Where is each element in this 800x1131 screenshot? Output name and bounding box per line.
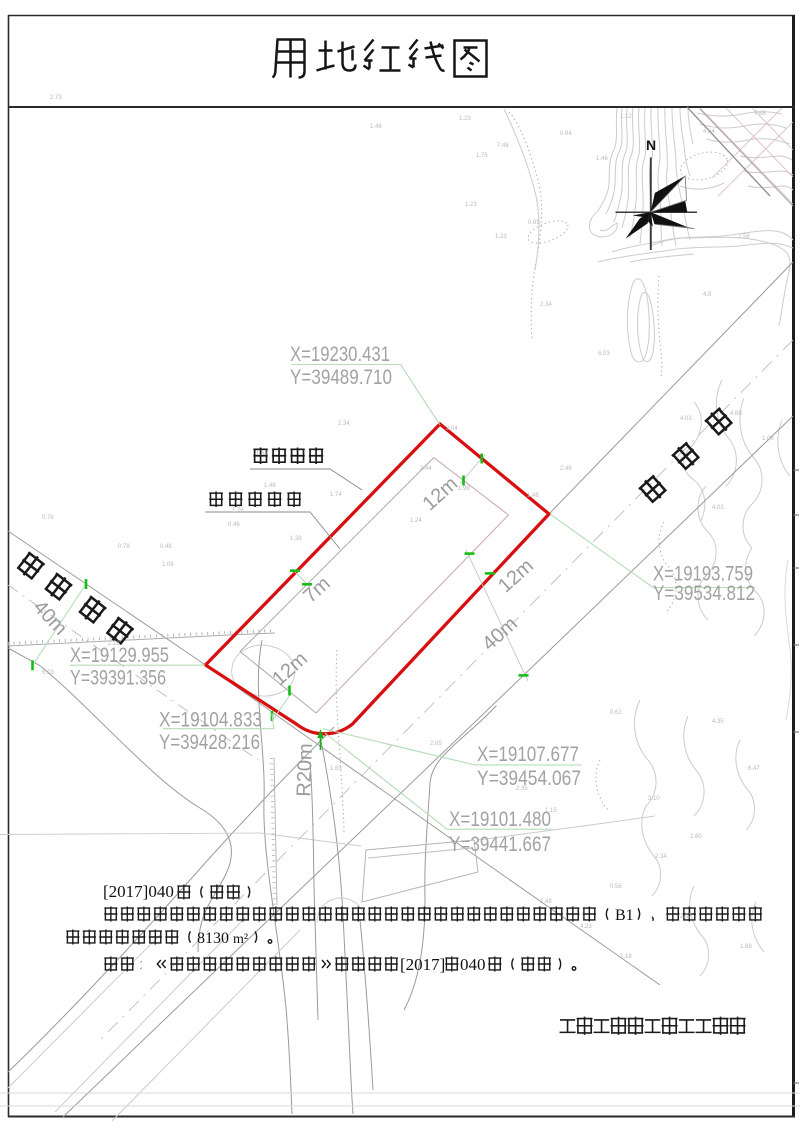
svg-text:X=19104.833: X=19104.833 [159,709,262,732]
svg-text:1.63: 1.63 [330,766,342,772]
svg-text:40m: 40m [478,613,522,655]
svg-text:7.48: 7.48 [497,143,509,149]
svg-text:2.18: 2.18 [108,641,120,647]
svg-text:1.48: 1.48 [527,493,539,499]
svg-text:R20m: R20m [293,743,317,797]
svg-text:2.34: 2.34 [338,421,350,427]
svg-text:1.48: 1.48 [264,483,276,489]
svg-text:4.68: 4.68 [730,411,742,417]
svg-text:4.64: 4.64 [703,129,715,135]
svg-text:1.68: 1.68 [740,944,752,950]
svg-text:X=19101.480: X=19101.480 [449,808,551,831]
svg-text:2.58: 2.58 [738,234,750,240]
svg-text:Y=39441.667: Y=39441.667 [449,833,551,856]
svg-text:Y=39428.216: Y=39428.216 [159,731,260,754]
svg-text:0.56: 0.56 [610,884,622,890]
svg-text:X=19129.955: X=19129.955 [70,644,169,667]
svg-text:1.76: 1.76 [232,508,244,514]
svg-text:Y=39454.067: Y=39454.067 [477,767,581,790]
svg-text:1.75: 1.75 [476,153,488,159]
svg-text:0.48: 0.48 [160,544,172,550]
svg-text:4.03: 4.03 [712,505,724,511]
svg-text:8130: 8130 [197,930,229,947]
svg-text:2.44: 2.44 [420,466,432,472]
svg-text:Y=39534.812: Y=39534.812 [653,582,755,605]
svg-text:2.34: 2.34 [655,854,667,860]
svg-text:1.24: 1.24 [410,518,422,524]
svg-text:4.8: 4.8 [703,292,712,298]
svg-text:B1: B1 [615,907,634,924]
svg-text:0.76: 0.76 [42,515,54,521]
svg-text:0.78: 0.78 [118,544,130,550]
svg-text:2.34: 2.34 [540,302,552,308]
svg-text:2.04: 2.04 [446,426,458,432]
svg-text:2.37: 2.37 [680,914,692,920]
svg-text:1.15: 1.15 [545,808,557,814]
svg-text:2.73: 2.73 [50,95,62,101]
svg-text:4.03: 4.03 [680,416,692,422]
svg-text:4.23: 4.23 [580,924,592,930]
svg-text:2.48: 2.48 [540,899,552,905]
svg-text:7m: 7m [299,573,334,608]
svg-text:1.99: 1.99 [458,486,470,492]
svg-text:1.23: 1.23 [495,234,507,240]
svg-text:2.05: 2.05 [430,741,442,747]
svg-text:7.68: 7.68 [754,111,766,117]
svg-text:3.10: 3.10 [648,796,660,802]
svg-text:m²: m² [233,932,248,947]
svg-text:Y=39391.356: Y=39391.356 [70,667,166,690]
svg-text:X=19230.431: X=19230.431 [290,343,390,366]
svg-text:1.23: 1.23 [465,202,477,208]
svg-text:0.65: 0.65 [528,220,540,226]
svg-text:0.84: 0.84 [560,131,572,137]
svg-text:N: N [646,137,656,153]
svg-text:2.60: 2.60 [690,834,702,840]
svg-text:4.35: 4.35 [712,719,724,725]
svg-text:1.46: 1.46 [596,156,608,162]
svg-text:6.47: 6.47 [748,766,760,772]
svg-text:12m: 12m [268,648,312,690]
svg-text:6.03: 6.03 [598,351,610,357]
svg-text:12m: 12m [494,555,538,597]
svg-text:1.12: 1.12 [620,114,632,120]
svg-text:[2017]040: [2017]040 [103,882,174,901]
svg-text:2.48: 2.48 [560,466,572,472]
svg-text:1.23: 1.23 [459,116,471,122]
svg-text:1.74: 1.74 [330,492,342,498]
svg-text:1.08: 1.08 [162,562,174,568]
svg-text:40m: 40m [29,596,72,639]
svg-text:12m: 12m [419,473,463,515]
svg-text:[2017]: [2017] [400,955,445,974]
svg-text:0.46: 0.46 [228,522,240,528]
svg-text:1.46: 1.46 [370,124,382,130]
svg-text:1.68: 1.68 [256,451,268,457]
svg-text:Y=39489.710: Y=39489.710 [290,366,392,389]
svg-text:2.35: 2.35 [516,786,528,792]
svg-text:X=19107.677: X=19107.677 [477,743,579,766]
svg-text:040: 040 [460,955,486,974]
svg-text:6.03: 6.03 [42,670,54,676]
svg-text:0.62: 0.62 [610,710,622,716]
svg-text:1.18: 1.18 [620,954,632,960]
svg-text:1.08: 1.08 [762,436,774,442]
svg-text:1.38: 1.38 [290,536,302,542]
